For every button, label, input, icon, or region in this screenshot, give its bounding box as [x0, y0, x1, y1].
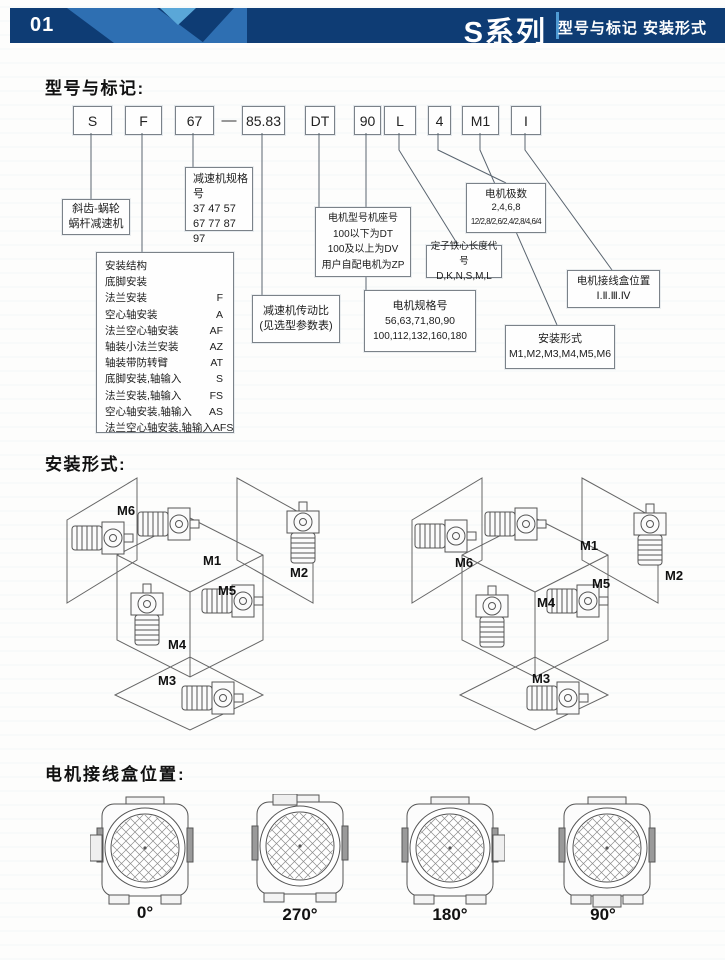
angle-label-270: 270° — [255, 905, 345, 925]
annotation-mount-form: 安装形式 M1,M2,M3,M4,M5,M6 — [505, 325, 615, 369]
annotation-line: 12/2,8/2,6/2,4/2,8/4,6/4 — [467, 215, 545, 229]
label-m5: M5 — [218, 583, 236, 598]
annotation-line: 2,4,6,8 — [467, 201, 545, 215]
junction-box-left — [90, 835, 102, 861]
mount-label: 法兰空心轴安装,轴输入 — [105, 420, 213, 436]
motor-m6-icon — [415, 520, 476, 552]
chevron-decoration-icon — [62, 8, 247, 43]
mount-row: 底脚安装 — [105, 274, 229, 290]
code-box-90: 90 — [354, 106, 381, 135]
mount-row: 轴装小法兰安装AZ — [105, 339, 229, 355]
mount-code: A — [216, 307, 229, 323]
mount-label: 轴装带防转臂 — [105, 355, 168, 371]
mount-code: AT — [210, 355, 229, 371]
annotation-line: 37 47 57 — [193, 202, 252, 217]
annotation-line: (见选型参数表) — [253, 319, 339, 334]
annotation-mount-structure: 安装结构 底脚安装 法兰安装F 空心轴安装A 法兰空心轴安装AF 轴装小法兰安装… — [96, 252, 234, 433]
annotation-title: 电机规格号 — [365, 299, 475, 314]
code-box-m1: M1 — [462, 106, 499, 135]
annotation-line: 67 77 87 — [193, 217, 252, 232]
label-m1: M1 — [203, 553, 221, 568]
label-m3: M3 — [532, 671, 550, 686]
annotation-line: 斜齿-蜗轮 — [63, 202, 129, 217]
annotation-line: M1,M2,M3,M4,M5,M6 — [506, 347, 614, 362]
model-section-title: 型号与标记: — [45, 74, 145, 99]
annotation-stator-length: 定子铁心长度代号 D,K,N,S,M,L — [426, 245, 502, 278]
junction-motor-180deg — [395, 796, 505, 908]
code-box-s: S — [73, 106, 112, 135]
motor-m3-icon — [182, 682, 243, 714]
mount-label: 底脚安装 — [105, 274, 147, 290]
code-box-4: 4 — [428, 106, 451, 135]
label-m2: M2 — [290, 565, 308, 580]
catalog-page: 01 S系列 型号与标记 安装形式 型号与标记: S F 67 — 85.83 … — [0, 0, 725, 960]
label-m5: M5 — [592, 576, 610, 591]
annotation-line: D,K,N,S,M,L — [427, 269, 501, 284]
mount-code: F — [217, 290, 229, 306]
annotation-reducer-type: 斜齿-蜗轮 蜗杆减速机 — [62, 199, 130, 235]
annotation-motor-size: 电机规格号 56,63,71,80,90 100,112,132,160,180 — [364, 290, 476, 352]
header-subtitle: 型号与标记 安装形式 — [558, 17, 707, 38]
mount-code: AS — [209, 404, 229, 420]
motor-m4-icon — [131, 584, 163, 645]
mount-row: 法兰安装,轴输入FS — [105, 388, 229, 404]
label-m6: M6 — [455, 555, 473, 570]
mount-row: 法兰安装F — [105, 290, 229, 306]
junction-motor-0deg — [90, 796, 200, 908]
annotation-title: 电机接线盒位置 — [568, 274, 659, 289]
mount-code: AFS — [213, 420, 239, 436]
annotation-title: 定子铁心长度代号 — [427, 239, 501, 269]
annotation-ratio: 减速机传动比 (见选型参数表) — [252, 295, 340, 343]
motor-m2-icon — [634, 504, 666, 565]
mount-row: 底脚安装,轴输入S — [105, 371, 229, 387]
mount-code: S — [216, 371, 229, 387]
code-box-i: I — [511, 106, 541, 135]
annotation-line: 减速机传动比 — [253, 304, 339, 319]
label-m2: M2 — [665, 568, 683, 583]
annotation-reducer-size: 减速机规格号 37 47 57 67 77 87 97 — [185, 167, 253, 231]
label-m6: M6 — [117, 503, 135, 518]
motor-m1-icon — [138, 508, 199, 540]
mount-label: 底脚安装,轴输入 — [105, 371, 181, 387]
annotation-title: 减速机规格号 — [193, 172, 252, 202]
mount-row: 轴装带防转臂AT — [105, 355, 229, 371]
annotation-line: 100以下为DT — [316, 227, 410, 243]
annotation-line: 97 — [193, 232, 252, 247]
junction-box-right — [493, 835, 505, 861]
label-m1: M1 — [580, 538, 598, 553]
header-bar: 01 S系列 型号与标记 安装形式 — [10, 8, 725, 43]
mount-row: 空心轴安装,轴输入AS — [105, 404, 229, 420]
mount-code: FS — [210, 388, 229, 404]
junction-section-title: 电机接线盒位置: — [45, 760, 186, 785]
code-box-l: L — [384, 106, 416, 135]
series-title: S系列 — [464, 9, 547, 51]
annotation-line: 电机型号机座号 — [316, 211, 410, 227]
annotation-line: 蜗杆减速机 — [63, 217, 129, 232]
label-m4: M4 — [168, 637, 187, 652]
motor-m1-icon — [485, 508, 546, 540]
annotation-title: 安装结构 — [105, 258, 229, 274]
code-separator: — — [216, 112, 242, 129]
installation-diagram-left: M6 M1 M2 M5 M4 M3 — [50, 475, 390, 745]
mount-row: 法兰空心轴安装AF — [105, 323, 229, 339]
installation-diagram-right: M6 M1 M2 M5 M4 M3 — [395, 475, 725, 745]
mount-code — [223, 274, 229, 290]
angle-label-0: 0° — [100, 903, 190, 923]
mount-row: 法兰空心轴安装,轴输入AFS — [105, 420, 229, 436]
mount-code: AF — [210, 323, 229, 339]
annotation-motor-model: 电机型号机座号 100以下为DT 100及以上为DV 用户自配电机为ZP — [315, 207, 411, 277]
junction-box-top — [273, 794, 297, 805]
code-box-dt: DT — [305, 106, 335, 135]
code-box-ratio: 85.83 — [242, 106, 285, 135]
annotation-motor-poles: 电机极数 2,4,6,8 12/2,8/2,6/2,4/2,8/4,6/4 — [466, 183, 546, 233]
motor-m6-icon — [72, 522, 133, 554]
mount-label: 轴装小法兰安装 — [105, 339, 179, 355]
installation-section-title: 安装形式: — [45, 450, 126, 475]
mount-row: 空心轴安装A — [105, 307, 229, 323]
mount-label: 法兰安装 — [105, 290, 147, 306]
mount-label: 空心轴安装,轴输入 — [105, 404, 192, 420]
angle-label-180: 180° — [405, 905, 495, 925]
motor-m4-icon — [476, 586, 508, 647]
mount-label: 法兰安装,轴输入 — [105, 388, 181, 404]
label-m4: M4 — [537, 595, 556, 610]
annotation-line: 用户自配电机为ZP — [316, 258, 410, 274]
code-box-f: F — [125, 106, 162, 135]
mount-label: 法兰空心轴安装 — [105, 323, 179, 339]
annotation-line: 100及以上为DV — [316, 242, 410, 258]
annotation-title: 电机极数 — [467, 187, 545, 201]
page-number: 01 — [30, 14, 54, 37]
mount-code: AZ — [210, 339, 229, 355]
code-box-67: 67 — [175, 106, 214, 135]
angle-label-90: 90° — [558, 905, 648, 925]
mount-label: 空心轴安装 — [105, 307, 158, 323]
motor-m2-icon — [287, 502, 319, 563]
annotation-line: 56,63,71,80,90 — [365, 314, 475, 329]
annotation-line: Ⅰ.Ⅱ.Ⅲ.Ⅳ — [568, 289, 659, 304]
annotation-title: 安装形式 — [506, 332, 614, 347]
motor-m3-icon — [527, 682, 588, 714]
annotation-line: 100,112,132,160,180 — [365, 329, 475, 344]
label-m3: M3 — [158, 673, 176, 688]
annotation-junction-position: 电机接线盒位置 Ⅰ.Ⅱ.Ⅲ.Ⅳ — [567, 270, 660, 308]
junction-motor-270deg — [245, 794, 355, 906]
junction-motor-90deg — [552, 796, 662, 908]
